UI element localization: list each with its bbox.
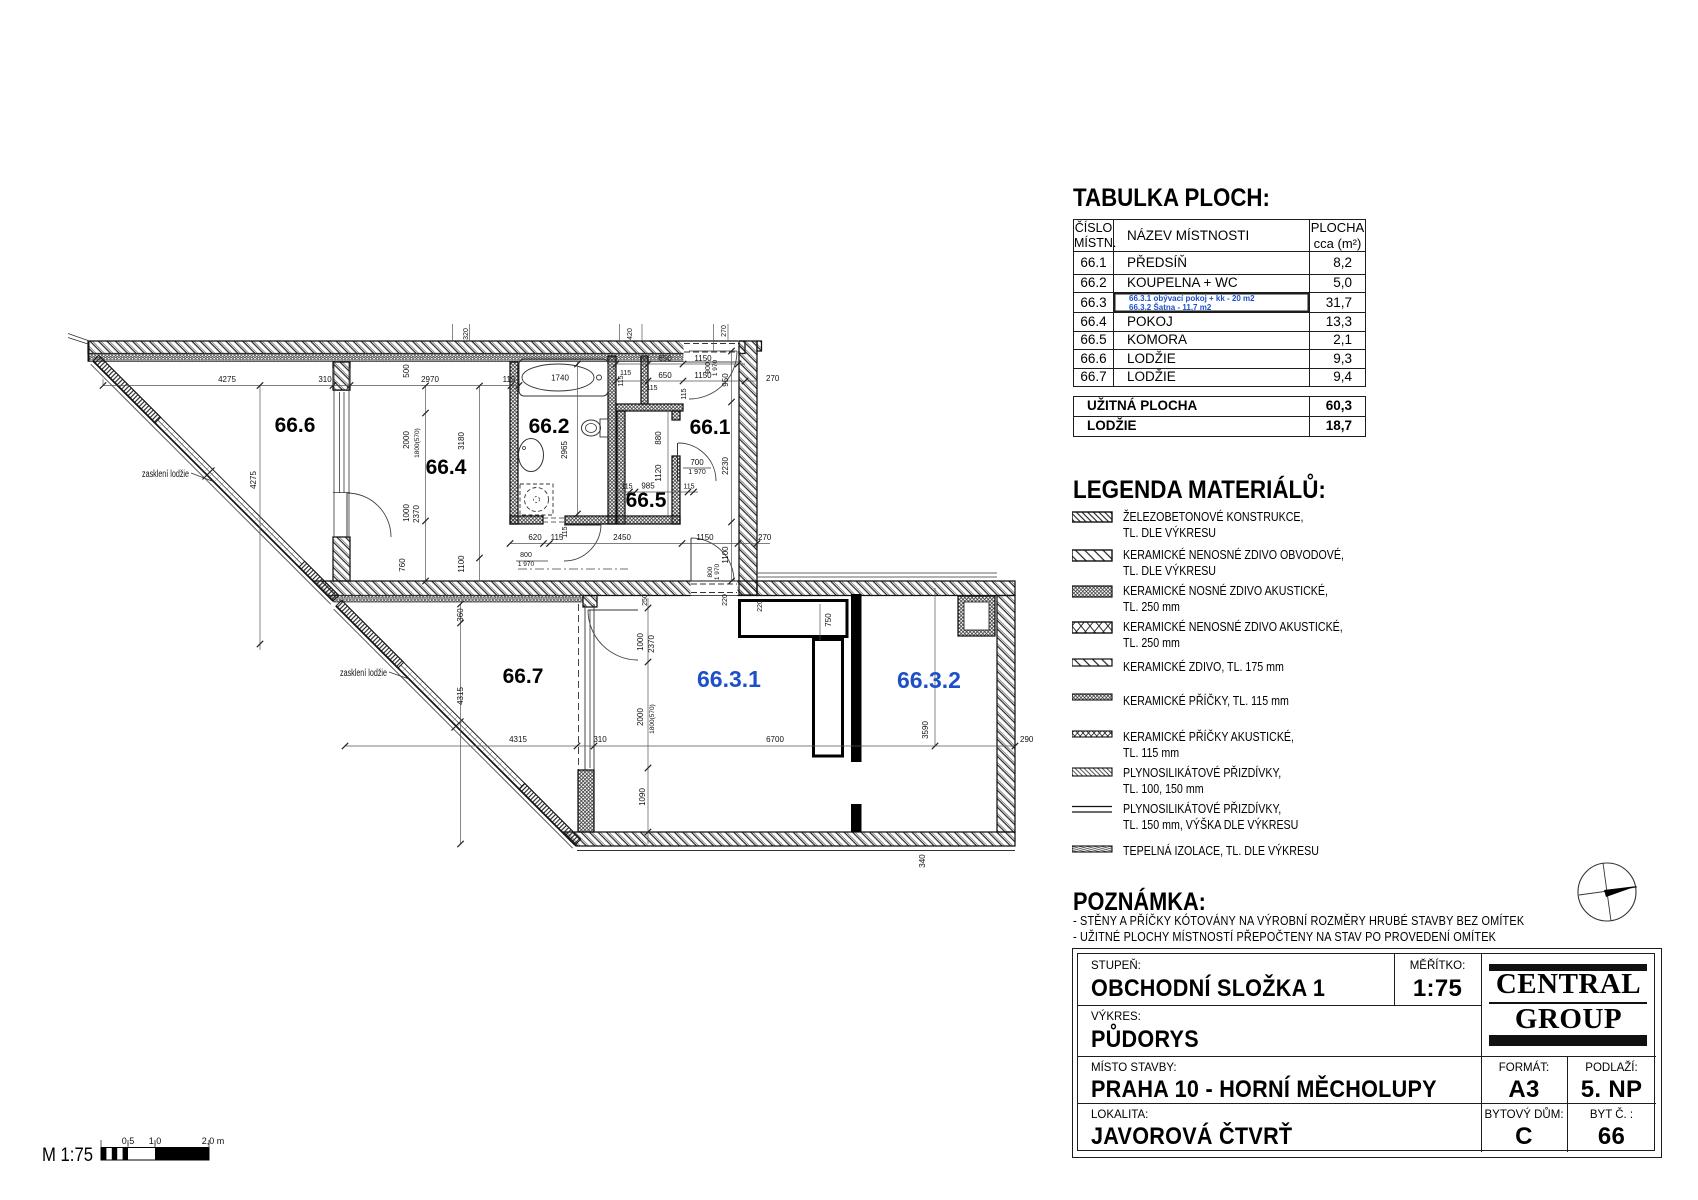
svg-text:115: 115	[503, 375, 516, 384]
svg-text:1100: 1100	[721, 546, 730, 564]
svg-text:1 970: 1 970	[714, 563, 721, 580]
svg-text:900: 900	[705, 362, 712, 374]
svg-text:1 970: 1 970	[712, 359, 719, 376]
svg-text:800: 800	[707, 566, 714, 577]
svg-text:115: 115	[620, 370, 631, 377]
svg-text:66.2: 66.2	[529, 415, 570, 438]
svg-text:2965: 2965	[560, 441, 569, 459]
svg-text:1,0: 1,0	[149, 1136, 162, 1146]
svg-text:310: 310	[593, 735, 607, 744]
svg-text:3590: 3590	[921, 721, 930, 739]
svg-text:1800(570): 1800(570)	[649, 704, 656, 734]
svg-text:zasklení lodžie: zasklení lodžie	[142, 469, 189, 480]
svg-text:115: 115	[683, 484, 694, 491]
svg-text:1150: 1150	[694, 354, 712, 363]
svg-text:270: 270	[766, 374, 780, 383]
svg-text:270: 270	[721, 325, 728, 337]
svg-text:2370: 2370	[647, 635, 656, 653]
svg-text:220: 220	[722, 594, 729, 606]
svg-text:M 1:75: M 1:75	[42, 1144, 93, 1166]
svg-text:66.4: 66.4	[426, 456, 467, 479]
svg-text:2230: 2230	[721, 457, 730, 475]
svg-text:760: 760	[398, 558, 407, 572]
svg-text:420: 420	[627, 328, 634, 340]
svg-text:66.3.2: 66.3.2	[897, 667, 961, 693]
svg-text:220: 220	[757, 600, 764, 612]
svg-text:1 970: 1 970	[688, 469, 706, 476]
svg-text:1120: 1120	[654, 464, 663, 482]
svg-text:6700: 6700	[766, 735, 784, 744]
svg-text:650: 650	[658, 371, 672, 380]
svg-text:310: 310	[318, 375, 332, 384]
svg-text:290: 290	[1020, 735, 1034, 744]
svg-text:1 970: 1 970	[518, 561, 535, 568]
svg-text:3180: 3180	[457, 432, 466, 450]
svg-text:2000: 2000	[636, 708, 645, 726]
svg-text:66.5: 66.5	[626, 489, 667, 512]
svg-text:700: 700	[690, 458, 704, 467]
svg-text:500: 500	[402, 364, 411, 378]
svg-text:650: 650	[658, 354, 672, 363]
svg-text:880: 880	[654, 431, 663, 445]
svg-text:1090: 1090	[638, 788, 647, 806]
svg-text:2000: 2000	[402, 431, 411, 449]
svg-text:1000: 1000	[636, 633, 645, 651]
svg-text:620: 620	[528, 533, 542, 542]
svg-text:4315: 4315	[456, 687, 465, 705]
svg-text:66.6: 66.6	[275, 414, 316, 437]
svg-text:0,5: 0,5	[122, 1136, 135, 1146]
svg-text:4275: 4275	[249, 471, 258, 489]
svg-text:115: 115	[681, 388, 688, 399]
svg-text:4315: 4315	[509, 735, 527, 744]
svg-text:66.7: 66.7	[503, 665, 544, 688]
svg-text:1740: 1740	[551, 374, 569, 383]
svg-text:4275: 4275	[218, 375, 236, 384]
svg-text:66.3.1: 66.3.1	[697, 666, 761, 692]
svg-text:800: 800	[520, 552, 532, 559]
svg-text:2,0 m: 2,0 m	[202, 1136, 225, 1146]
svg-text:950: 950	[721, 373, 730, 387]
svg-text:340: 340	[918, 854, 927, 868]
svg-text:360: 360	[456, 608, 465, 622]
svg-text:1100: 1100	[457, 555, 466, 573]
svg-text:1150: 1150	[696, 533, 714, 542]
svg-text:66.1: 66.1	[690, 416, 731, 439]
svg-text:115: 115	[551, 533, 564, 542]
svg-text:1000: 1000	[402, 504, 411, 522]
svg-text:2970: 2970	[421, 375, 439, 384]
svg-text:750: 750	[824, 613, 833, 627]
svg-text:115: 115	[646, 385, 657, 392]
svg-text:2450: 2450	[613, 533, 631, 542]
svg-text:zasklení lodžie: zasklení lodžie	[340, 668, 387, 679]
svg-text:115: 115	[618, 375, 625, 386]
svg-text:1800(570): 1800(570)	[414, 428, 421, 458]
svg-text:2370: 2370	[412, 505, 421, 523]
svg-text:320: 320	[463, 328, 470, 340]
